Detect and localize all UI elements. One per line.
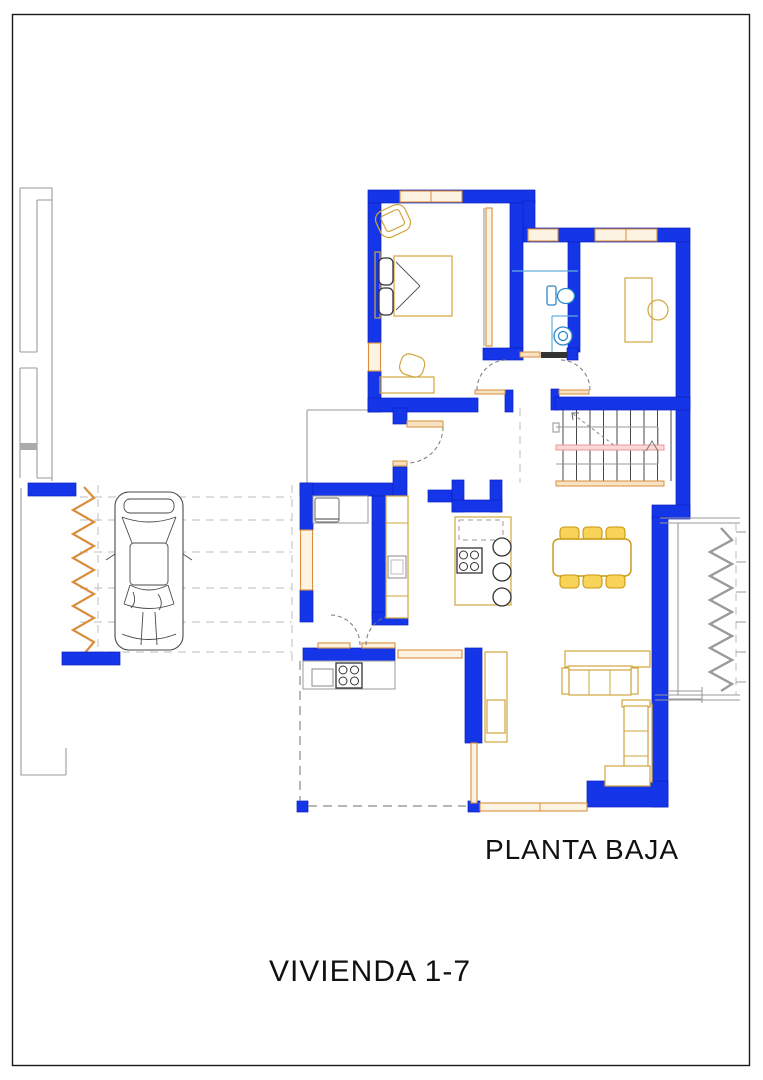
dining-table	[553, 539, 631, 576]
bedroom-desk-chair	[397, 352, 426, 379]
garage-wall-stub-top	[28, 483, 76, 496]
tall-cabinet-detail	[487, 700, 505, 733]
plan-title: PLANTA BAJA	[485, 834, 679, 865]
fence-zigzag-left	[73, 487, 94, 654]
bar-stool-3	[493, 588, 511, 606]
toilet-cistern	[547, 286, 556, 305]
toilet-bowl	[558, 289, 575, 304]
bedroom-desk	[380, 377, 434, 393]
terrace-post-left	[297, 801, 308, 812]
neighbor-wall-band	[20, 443, 37, 450]
staircase	[553, 410, 671, 486]
study-chair	[648, 300, 668, 320]
kitchen-slider	[398, 650, 462, 658]
study-furniture	[625, 278, 668, 342]
bathroom-door-leaf	[541, 352, 567, 358]
terrace-door-sill-right	[362, 643, 395, 648]
built-in-wardrobe	[486, 208, 492, 346]
stair-bottom-sill	[556, 481, 664, 486]
tall-cabinet	[485, 652, 507, 742]
bar-stool-1	[493, 538, 511, 556]
plan-sheet: PLANTA BAJA VIVIENDA 1-7	[0, 0, 763, 1080]
dining-chair	[560, 527, 579, 540]
floor-plan-drawing: PLANTA BAJA VIVIENDA 1-7	[0, 0, 763, 1080]
washbasin-drain	[559, 332, 568, 341]
bedroom-door-arc	[477, 360, 507, 390]
entry-porch	[307, 408, 520, 483]
dining-chair	[606, 527, 625, 540]
bedroom-furniture	[373, 202, 492, 393]
pillow-1	[379, 258, 393, 285]
bar-stool-2	[493, 563, 511, 581]
dining-chair	[583, 575, 602, 588]
neighbor-outline-left	[20, 188, 66, 775]
bed-cover-fold	[396, 262, 420, 310]
study-door-sill	[559, 390, 589, 394]
terrace-door-sill-left	[318, 643, 350, 648]
dining-furniture	[553, 527, 631, 588]
entry-door-sill	[393, 461, 407, 466]
bathroom-window	[528, 229, 558, 241]
pillow-2	[379, 288, 393, 315]
bathroom-door-sill	[520, 352, 540, 357]
fence-zigzag-right	[710, 528, 732, 691]
entry-door-arc	[407, 427, 443, 463]
bedroom-side-window	[369, 343, 381, 371]
neighbor-panel-right	[655, 518, 746, 703]
bedroom-door-sill	[475, 390, 505, 394]
dining-chair	[560, 575, 579, 588]
console-table	[565, 651, 650, 667]
driveway-carport	[28, 483, 292, 665]
living-south-glazing	[480, 803, 587, 811]
sofa-three-seat	[562, 666, 638, 695]
garage-wall-stub-bottom	[62, 652, 120, 665]
stair-direction-line	[573, 414, 615, 446]
living-furniture	[485, 651, 652, 786]
car	[106, 492, 192, 650]
dining-chair	[606, 575, 625, 588]
study-door-arc	[560, 360, 590, 390]
dwelling-title: VIVIENDA 1-7	[269, 955, 471, 988]
kitchen-terrace-door-arc-left	[330, 615, 360, 645]
island-cooktop	[457, 548, 482, 573]
entry-door-leaf	[407, 421, 443, 427]
kitchen-window	[301, 530, 313, 590]
outdoor-cooktop	[336, 663, 362, 688]
living-west-glazing	[471, 743, 477, 803]
side-table	[605, 766, 650, 786]
outdoor-sink	[312, 669, 333, 686]
double-bed	[394, 256, 452, 316]
dining-chair	[583, 527, 602, 540]
